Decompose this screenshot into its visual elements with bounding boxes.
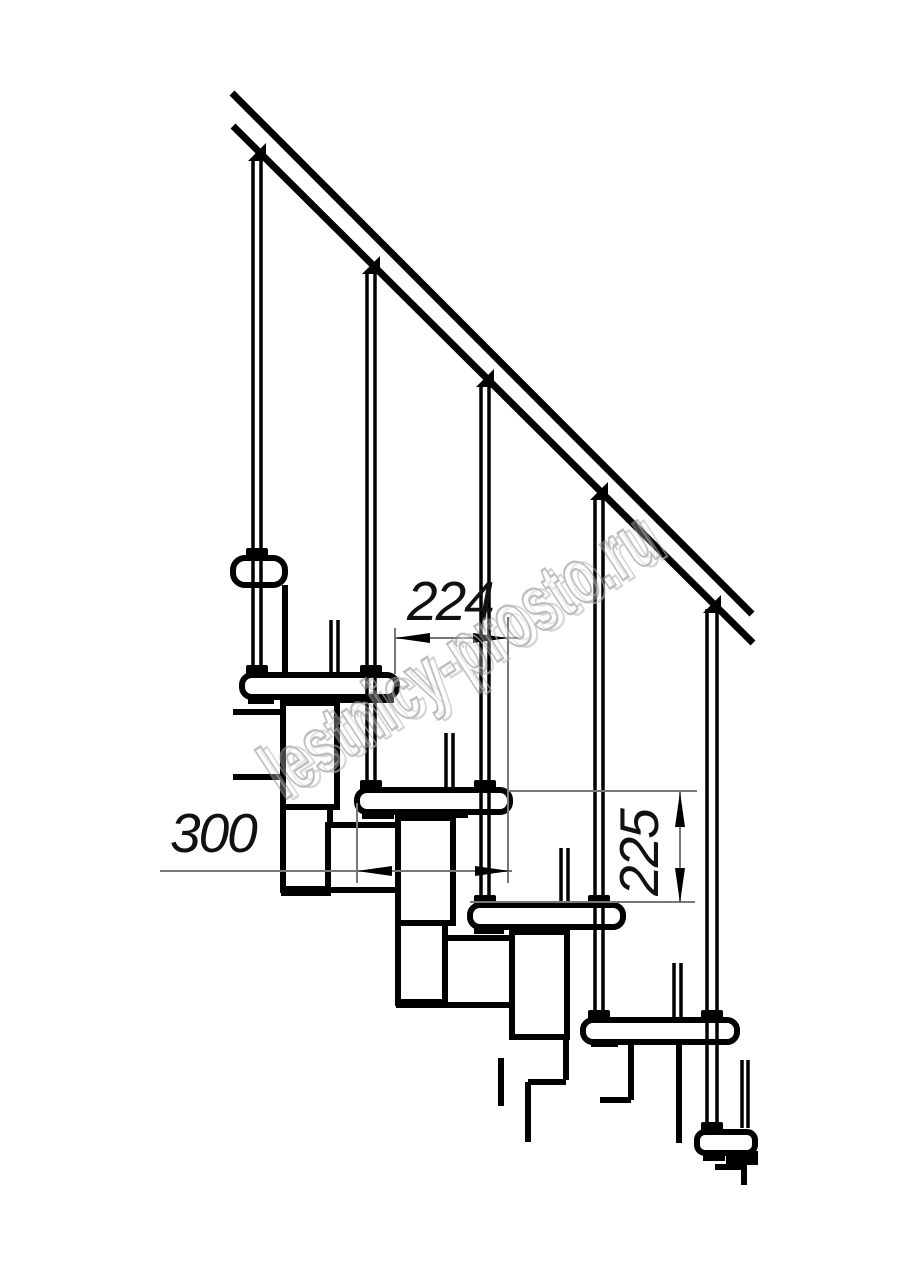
module-foot-plate [396,999,446,1008]
mount-plate [438,811,468,818]
baluster-collar [246,548,268,559]
mount-plate [511,926,567,932]
arrow-up [675,792,685,827]
tread-3 [357,790,510,812]
tread-5 [583,1020,737,1042]
baluster-1 [246,143,268,676]
module-box [398,923,445,1003]
handrail-top-line [232,93,752,614]
watermark-text: lestnicy-prosto.ru [244,493,674,815]
baluster-collar [474,895,496,906]
baluster-collar [701,1122,723,1133]
tread-4 [470,905,623,927]
module-box [328,825,403,890]
connector-rod [446,733,453,788]
watermark: lestnicy-prosto.ru lestnicy-prosto.ru [244,493,680,816]
module-box [283,807,330,890]
baluster-collar [246,665,268,676]
baluster-collar [701,1010,723,1021]
mount-plate [726,1151,758,1165]
baluster-5 [701,595,723,1133]
module-cut-lines [501,1037,747,1185]
drawing-canvas: 224 300 225 lestnicy-prosto.ru lestnicy-… [0,0,914,1280]
module-box [445,938,517,1005]
tread-1 [233,558,285,585]
mount-plate [248,696,274,704]
mount-plate [624,1039,687,1045]
connector-rod [561,848,568,902]
tread-6 [697,1132,755,1153]
baluster-collar [360,780,382,791]
connector-rod [331,620,338,672]
baluster-collar [588,1010,610,1021]
staircase-technical-drawing: 224 300 225 lestnicy-prosto.ru lestnicy-… [0,0,914,1280]
baluster-collar [474,780,496,791]
dimension-label-300: 300 [170,802,258,864]
mount-plate [703,1151,725,1161]
dimension-label-225: 225 [608,808,670,897]
module-box [512,932,567,1037]
connector-rod [674,963,681,1018]
mount-plate [362,811,394,819]
arrow-down [675,868,685,903]
arrow-right [475,866,510,876]
mount-plate [591,1039,618,1047]
mount-plate [474,926,504,934]
baluster-collar [588,895,610,906]
connector-rod [742,1060,748,1128]
module-foot-plate [281,886,331,896]
